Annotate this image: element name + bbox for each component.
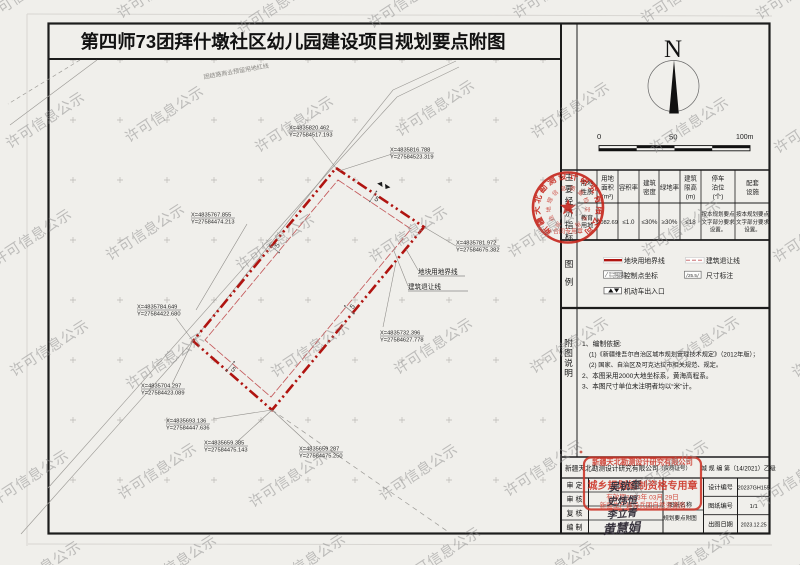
svg-text:地块用地界线: 地块用地界线 xyxy=(418,267,458,276)
svg-text:X=4835767.855: X=4835767.855 xyxy=(191,212,231,218)
svg-text:泊位: 泊位 xyxy=(712,183,725,192)
svg-text:X=4835693.136: X=4835693.136 xyxy=(166,418,206,424)
svg-text:Y=27584627.778: Y=27584627.778 xyxy=(380,338,424,344)
svg-text:Y=27584675.382: Y=27584675.382 xyxy=(456,248,500,254)
svg-text:按本规划要点: 按本规划要点 xyxy=(736,210,770,218)
svg-text:地块用地界线: 地块用地界线 xyxy=(624,256,665,265)
svg-text:设置。: 设置。 xyxy=(744,226,761,234)
svg-text:明: 明 xyxy=(564,368,573,378)
svg-text:第四师73团拜什墩社区幼儿园建设项目规划要点附图: 第四师73团拜什墩社区幼儿园建设项目规划要点附图 xyxy=(80,31,505,52)
svg-text:Y=27584474.213: Y=27584474.213 xyxy=(191,220,235,226)
svg-text:密度: 密度 xyxy=(643,187,656,196)
svg-text:3、本图尺寸单位未注明者均以“米”计。: 3、本图尺寸单位未注明者均以“米”计。 xyxy=(582,381,696,390)
svg-text:黄慧娟: 黄慧娟 xyxy=(602,520,643,537)
svg-text:设计编号: 设计编号 xyxy=(708,484,733,492)
svg-text:尺寸标注: 尺寸标注 xyxy=(706,271,733,280)
svg-text:建筑退让线: 建筑退让线 xyxy=(706,256,740,265)
svg-text:机动车出入口: 机动车出入口 xyxy=(624,286,665,295)
svg-text:建筑退让线: 建筑退让线 xyxy=(408,282,441,291)
svg-text:Y=27584423.089: Y=27584423.089 xyxy=(141,391,185,397)
svg-text:配套: 配套 xyxy=(746,178,759,187)
svg-text:限: 限 xyxy=(594,206,605,216)
svg-text:X=4835816.788: X=4835816.788 xyxy=(390,147,430,153)
svg-text:审 定: 审 定 xyxy=(567,481,583,490)
svg-text:说: 说 xyxy=(564,357,573,368)
svg-text:图纸编号: 图纸编号 xyxy=(708,502,733,510)
svg-text:100m: 100m xyxy=(736,134,754,141)
svg-text:≤30%: ≤30% xyxy=(642,219,658,226)
svg-text:X=4835781.972: X=4835781.972 xyxy=(456,240,496,246)
svg-text:控制点坐标: 控制点坐标 xyxy=(624,271,658,280)
svg-text:25.5: 25.5 xyxy=(688,273,697,278)
svg-text:≤1.0: ≤1.0 xyxy=(623,219,636,226)
svg-text:停车: 停车 xyxy=(712,174,725,183)
svg-text:设施: 设施 xyxy=(746,187,759,196)
svg-text:建筑: 建筑 xyxy=(643,178,656,187)
svg-text:1/1: 1/1 xyxy=(750,504,758,510)
svg-text:2、本图采用2000大地坐标系，黄海高程系。: 2、本图采用2000大地坐标系，黄海高程系。 xyxy=(582,371,712,380)
svg-text:图: 图 xyxy=(565,259,574,269)
svg-text:编 制: 编 制 xyxy=(567,523,583,532)
svg-text:用地: 用地 xyxy=(601,174,614,183)
svg-text:设置。: 设置。 xyxy=(710,226,727,234)
svg-text:Y=27584447.636: Y=27584447.636 xyxy=(166,426,210,432)
svg-text:X=4835659.385: X=4835659.385 xyxy=(204,440,244,446)
svg-text:Y=27584475.143: Y=27584475.143 xyxy=(204,448,248,454)
svg-text:(m): (m) xyxy=(686,194,696,201)
svg-text:绿地率: 绿地率 xyxy=(660,183,680,192)
svg-text:文字部分要求: 文字部分要求 xyxy=(736,218,770,226)
svg-text:Y=27584422.680: Y=27584422.680 xyxy=(137,312,181,318)
svg-text:审 核: 审 核 xyxy=(567,495,583,504)
svg-text:建筑: 建筑 xyxy=(684,174,697,183)
svg-text:限高: 限高 xyxy=(684,183,697,192)
svg-text:容积率: 容积率 xyxy=(619,183,639,192)
svg-text:2023.12.25: 2023.12.25 xyxy=(741,523,767,529)
svg-text:0: 0 xyxy=(597,132,601,141)
svg-text:天: 天 xyxy=(531,205,542,215)
svg-text:N: N xyxy=(664,36,682,63)
svg-text:例: 例 xyxy=(565,276,574,287)
svg-text:X=4835784.649: X=4835784.649 xyxy=(137,304,177,310)
svg-text:面积: 面积 xyxy=(601,183,614,192)
svg-text:X=4835704.297: X=4835704.297 xyxy=(141,383,181,389)
svg-text:城 规 编 第（14/2021）乙级: 城 规 编 第（14/2021）乙级 xyxy=(701,465,776,473)
svg-text:规划要点附图: 规划要点附图 xyxy=(663,514,697,522)
svg-text:复 核: 复 核 xyxy=(567,509,583,518)
svg-text:(2) 国家、自治区及可克达拉市相关规范、规定。: (2) 国家、自治区及可克达拉市相关规范、规定。 xyxy=(589,361,722,369)
svg-text:X=4835732.396: X=4835732.396 xyxy=(380,330,420,336)
svg-text:Y=27584523.319: Y=27584523.319 xyxy=(390,155,434,161)
